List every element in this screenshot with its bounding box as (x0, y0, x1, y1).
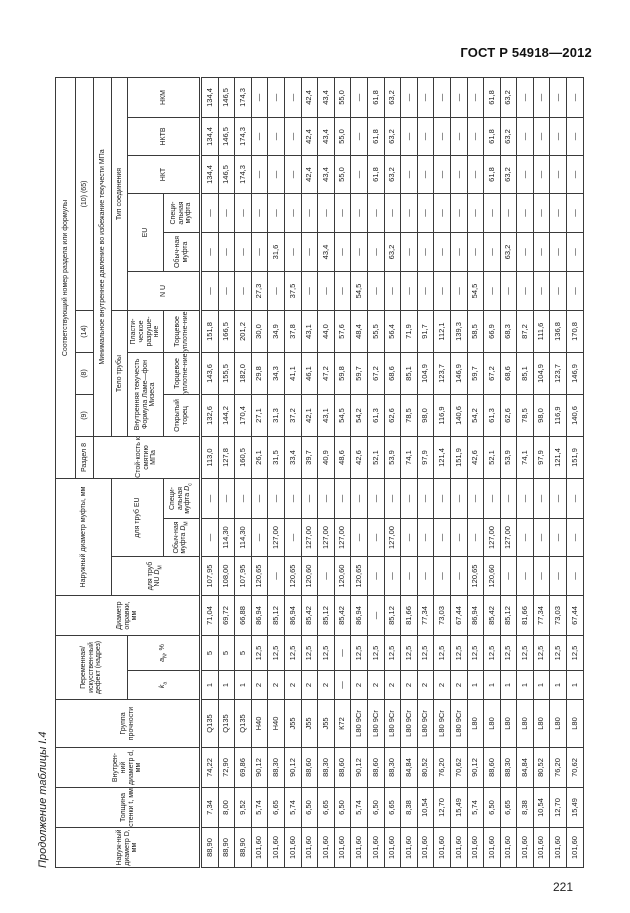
cell: 101,60 (284, 828, 301, 868)
cell: 170,4 (235, 395, 252, 437)
cell: 6,50 (367, 788, 384, 828)
table-row: 88,908,0072,90Q1351569,72108,00114,30—12… (218, 77, 235, 867)
cell: — (533, 272, 550, 311)
cell: 123,7 (434, 353, 451, 395)
cell: 67,44 (567, 596, 584, 636)
cell: 101,60 (301, 828, 318, 868)
cell: — (218, 272, 235, 311)
header-eu-special-coupling: Специ-альная муфта (164, 194, 201, 233)
cell: 2 (450, 671, 467, 700)
cell: — (550, 557, 567, 596)
table-row: 101,6015,4970,62L80112,567,44———151,9140… (567, 77, 584, 867)
cell: 120,60 (301, 557, 318, 596)
cell: L80 9Cr (434, 700, 451, 748)
page-number: 221 (553, 880, 573, 894)
cell: 101,60 (251, 828, 268, 868)
cell: L80 (484, 700, 501, 748)
cell: — (450, 156, 467, 194)
cell: 120,65 (284, 557, 301, 596)
cell: 43,4 (318, 77, 335, 117)
cell: — (251, 156, 268, 194)
cell: 114,30 (235, 519, 252, 557)
header-wall-thickness: Толщина стенки t, мм (56, 788, 201, 828)
header-variable-defect: Переменная/ искусствен-ный дефект (надре… (56, 636, 128, 700)
header-strength-grade: Группа прочности (56, 700, 201, 748)
cell: — (401, 118, 418, 156)
table-row: 101,605,7490,12L80112,586,94120,65——42,6… (467, 77, 484, 867)
cell: L80 9Cr (401, 700, 418, 748)
cell: — (301, 479, 318, 519)
header-connection-type: Тип соединения (112, 77, 128, 310)
cell: 42,4 (301, 77, 318, 117)
cell: 12,5 (251, 636, 268, 671)
cell: L80 (567, 700, 584, 748)
cell: 57,6 (334, 311, 351, 353)
cell: 81,66 (517, 596, 534, 636)
cell: 101,60 (484, 828, 501, 868)
header-min-internal-pressure: Минимальное внутреннее давление во избеж… (94, 77, 112, 436)
cell: 98,0 (533, 395, 550, 437)
cell: — (550, 77, 567, 117)
cell: 52,1 (484, 437, 501, 479)
cell: — (401, 519, 418, 557)
header-formula-9: (9) (76, 395, 94, 437)
cell: 39,7 (301, 437, 318, 479)
cell: — (251, 233, 268, 272)
cell: 127,00 (318, 519, 335, 557)
header-formula-8: (8) (76, 353, 94, 395)
cell: 88,60 (301, 748, 318, 788)
cell: 54,5 (351, 272, 368, 311)
cell: — (434, 118, 451, 156)
cell: 15,49 (450, 788, 467, 828)
cell: 127,00 (384, 519, 401, 557)
cell: 52,1 (367, 437, 384, 479)
cell: 26,1 (251, 437, 268, 479)
header-formula-14: (14) (76, 311, 94, 353)
cell: 88,30 (318, 748, 335, 788)
cell: — (401, 272, 418, 311)
cell: — (550, 479, 567, 519)
cell: — (401, 479, 418, 519)
cell: 12,70 (550, 788, 567, 828)
cell: — (550, 156, 567, 194)
cell: — (218, 194, 235, 233)
cell: 12,5 (301, 636, 318, 671)
cell: 67,44 (450, 596, 467, 636)
cell: 47,2 (318, 353, 335, 395)
cell: 120,65 (467, 557, 484, 596)
cell: 72,90 (218, 748, 235, 788)
cell: 2 (434, 671, 451, 700)
cell: 146,5 (218, 156, 235, 194)
cell: — (284, 479, 301, 519)
cell: 12,5 (417, 636, 434, 671)
cell: 88,60 (484, 748, 501, 788)
cell: — (318, 557, 335, 596)
cell: — (467, 479, 484, 519)
cell: 140,6 (450, 395, 467, 437)
cell: 101,60 (384, 828, 401, 868)
cell: 68,3 (500, 311, 517, 353)
cell: — (218, 479, 235, 519)
cell: 68,6 (384, 353, 401, 395)
cell: 6,50 (484, 788, 501, 828)
cell: — (500, 557, 517, 596)
cell: 5,74 (251, 788, 268, 828)
cell: 160,5 (235, 437, 252, 479)
cell: 151,9 (567, 437, 584, 479)
cell: 31,6 (268, 233, 285, 272)
cell: 43,4 (318, 156, 335, 194)
cell: 41,1 (284, 353, 301, 395)
cell: 61,8 (367, 118, 384, 156)
cell: 76,20 (434, 748, 451, 788)
cell: — (434, 557, 451, 596)
cell: — (367, 272, 384, 311)
cell: 88,30 (384, 748, 401, 788)
cell: — (401, 77, 418, 117)
cell: 1 (218, 671, 235, 700)
cell: 88,30 (268, 748, 285, 788)
cell: 5 (235, 636, 252, 671)
cell: 55,0 (334, 118, 351, 156)
cell: — (417, 156, 434, 194)
cell: 170,8 (567, 311, 584, 353)
cell: — (417, 233, 434, 272)
cell: J55 (301, 700, 318, 748)
cell: 12,5 (401, 636, 418, 671)
cell: Q135 (218, 700, 235, 748)
cell: 5 (218, 636, 235, 671)
cell: 107,95 (235, 557, 252, 596)
table-row: 101,605,7490,12L80 9Cr212,586,94120,65——… (351, 77, 368, 867)
cell: 69,72 (218, 596, 235, 636)
cell: — (434, 194, 451, 233)
cell: 63,2 (500, 77, 517, 117)
header-for-eu-pipes: для труб EU (112, 479, 164, 557)
cell: 84,84 (517, 748, 534, 788)
cell: — (251, 194, 268, 233)
cell: — (235, 194, 252, 233)
cell: 146,5 (218, 118, 235, 156)
cell: 2 (384, 671, 401, 700)
cell: 127,00 (268, 519, 285, 557)
cell: — (318, 272, 335, 311)
cell: 114,30 (218, 519, 235, 557)
cell: — (517, 233, 534, 272)
cell: 127,00 (301, 519, 318, 557)
cell: 86,94 (467, 596, 484, 636)
cell: 68,6 (500, 353, 517, 395)
cell: — (284, 156, 301, 194)
cell: 127,00 (500, 519, 517, 557)
cell: — (384, 272, 401, 311)
cell: — (367, 596, 384, 636)
cell: — (417, 194, 434, 233)
cell: 67,2 (484, 353, 501, 395)
cell: 85,1 (401, 353, 418, 395)
header-conn-nkt: НКТ (128, 156, 201, 194)
cell: 44,0 (318, 311, 335, 353)
header-corresponding-section: Соответствующий номер раздела или формул… (56, 77, 76, 478)
cell: — (467, 194, 484, 233)
cell: — (417, 519, 434, 557)
cell: 63,2 (500, 233, 517, 272)
cell: — (334, 233, 351, 272)
cell: 42,6 (467, 437, 484, 479)
cell: — (334, 636, 351, 671)
cell: — (334, 194, 351, 233)
cell: 42,4 (301, 156, 318, 194)
cell: — (268, 479, 285, 519)
cell: 1 (517, 671, 534, 700)
cell: 144,2 (218, 395, 235, 437)
cell: 1 (533, 671, 550, 700)
cell: — (450, 519, 467, 557)
cell: 63,2 (384, 233, 401, 272)
cell: — (268, 557, 285, 596)
cell: 70,62 (567, 748, 584, 788)
cell: 8,38 (517, 788, 534, 828)
cell: 10,54 (417, 788, 434, 828)
cell: L80 9Cr (450, 700, 467, 748)
cell: Q135 (235, 700, 252, 748)
cell: — (500, 194, 517, 233)
cell: L80 (500, 700, 517, 748)
cell: 37,5 (284, 272, 301, 311)
cell: — (201, 479, 219, 519)
cell: 88,60 (334, 748, 351, 788)
cell: — (351, 118, 368, 156)
cell: 6,65 (268, 788, 285, 828)
cell: 151,9 (450, 437, 467, 479)
cell: 6,65 (500, 788, 517, 828)
cell: 8,38 (401, 788, 418, 828)
cell: — (533, 233, 550, 272)
cell: — (550, 233, 567, 272)
cell: 43,4 (318, 118, 335, 156)
cell: 140,6 (567, 395, 584, 437)
cell: — (318, 194, 335, 233)
cell: 59,7 (351, 353, 368, 395)
cell: 12,5 (284, 636, 301, 671)
table-row: 101,606,5088,60J55212,585,42120,60127,00… (301, 77, 318, 867)
header-capped-end-plastic: Торцевое уплотне-ние (164, 311, 201, 353)
cell: 67,2 (367, 353, 384, 395)
cell: 121,4 (434, 437, 451, 479)
cell: — (517, 519, 534, 557)
cell: — (450, 77, 467, 117)
cell: — (533, 118, 550, 156)
header-eu-regular-coupling-dm: Обыч-ная муфта DМ (164, 519, 201, 557)
cell: — (567, 519, 584, 557)
cell: 59,8 (334, 353, 351, 395)
cell: 111,6 (533, 311, 550, 353)
cell: 70,62 (450, 748, 467, 788)
header-pipe-body: Тело трубы (112, 311, 128, 437)
cell: 101,60 (467, 828, 484, 868)
cell: 43,1 (301, 311, 318, 353)
cell: 55,0 (334, 156, 351, 194)
cell: 146,9 (567, 353, 584, 395)
cell: — (567, 156, 584, 194)
cell: 61,8 (367, 156, 384, 194)
cell: — (251, 519, 268, 557)
cell: — (550, 272, 567, 311)
cell: — (567, 479, 584, 519)
cell: 31,5 (268, 437, 285, 479)
cell: — (401, 557, 418, 596)
cell: 80,52 (533, 748, 550, 788)
cell: 2 (417, 671, 434, 700)
header-inner-diameter: Внутрен-ний диаметр d, мм (56, 748, 201, 788)
cell: 1 (550, 671, 567, 700)
cell: — (434, 233, 451, 272)
cell: — (450, 233, 467, 272)
header-open-end: Открытый торец (164, 395, 201, 437)
cell: — (384, 479, 401, 519)
cell: — (417, 479, 434, 519)
cell: L80 (517, 700, 534, 748)
cell: — (251, 479, 268, 519)
cell: 69,86 (235, 748, 252, 788)
header-conn-eu: EU (128, 194, 164, 272)
cell: 155,5 (218, 353, 235, 395)
cell: 174,3 (235, 156, 252, 194)
table-row: 101,606,6588,30L80112,585,12—127,00—53,9… (500, 77, 517, 867)
cell: — (318, 479, 335, 519)
cell: 101,60 (567, 828, 584, 868)
header-internal-yield-lame: Внутренняя текучестьФормула Ламе—фон Миз… (128, 353, 164, 437)
cell: 12,5 (367, 636, 384, 671)
cell: 9,52 (235, 788, 252, 828)
cell: 12,5 (567, 636, 584, 671)
table-row: 101,6012,7076,20L80 9Cr212,573,03———121,… (434, 77, 451, 867)
cell: — (235, 272, 252, 311)
cell: — (284, 519, 301, 557)
cell: 90,12 (284, 748, 301, 788)
table-row: 101,606,6588,30J55212,585,12—127,00—40,9… (318, 77, 335, 867)
cell: 146,9 (450, 353, 467, 395)
cell: — (384, 557, 401, 596)
cell: — (550, 118, 567, 156)
cell: 61,3 (484, 395, 501, 437)
cell: 54,2 (351, 395, 368, 437)
cell: 33,4 (284, 437, 301, 479)
cell: — (517, 479, 534, 519)
cell: 88,90 (218, 828, 235, 868)
cell: — (500, 272, 517, 311)
table-row: 88,909,5269,86Q1351566,88107,95114,30—16… (235, 77, 252, 867)
cell: 134,4 (201, 118, 219, 156)
header-plastic-collapse: Пласти-ческое разруше-ние (128, 311, 164, 353)
cell: 61,8 (484, 77, 501, 117)
cell: 5,74 (467, 788, 484, 828)
cell: — (401, 233, 418, 272)
cell: — (268, 272, 285, 311)
cell: 120,60 (334, 557, 351, 596)
cell: 12,5 (533, 636, 550, 671)
cell: 5,74 (351, 788, 368, 828)
cell: 54,2 (467, 395, 484, 437)
cell: — (533, 156, 550, 194)
cell: 62,6 (500, 395, 517, 437)
cell: 42,1 (301, 395, 318, 437)
cell: — (301, 272, 318, 311)
cell: 101,60 (351, 828, 368, 868)
cell: L80 9Cr (367, 700, 384, 748)
cell: — (417, 118, 434, 156)
cell: — (484, 479, 501, 519)
cell: 12,5 (434, 636, 451, 671)
table-row: 88,907,3474,22Q1351571,04107,95——113,013… (201, 77, 219, 867)
cell: 90,12 (467, 748, 484, 788)
cell: 127,8 (218, 437, 235, 479)
header-eu-regular-coupling: Обыч-ная муфта (164, 233, 201, 272)
cell: — (334, 272, 351, 311)
cell: 12,5 (484, 636, 501, 671)
cell: 62,6 (384, 395, 401, 437)
cell: 91,7 (417, 311, 434, 353)
cell: 87,2 (517, 311, 534, 353)
cell: 81,66 (401, 596, 418, 636)
header-conn-nu: N U (128, 272, 201, 311)
cell: 127,00 (484, 519, 501, 557)
cell: — (567, 272, 584, 311)
cell: 53,9 (500, 437, 517, 479)
cell: — (467, 519, 484, 557)
cell: — (567, 77, 584, 117)
table-row: 101,606,6588,30L80 9Cr212,585,12—127,00—… (384, 77, 401, 867)
cell: 166,5 (218, 311, 235, 353)
cell: 86,94 (351, 596, 368, 636)
header-for-nu-pipes: для труб NU DМ (112, 557, 201, 596)
cell: — (434, 519, 451, 557)
cell: 2 (367, 671, 384, 700)
cell: 146,5 (218, 77, 235, 117)
cell: 6,65 (318, 788, 335, 828)
cell: 132,6 (201, 395, 219, 437)
cell: 86,94 (251, 596, 268, 636)
cell: 15,49 (567, 788, 584, 828)
cell: 116,9 (434, 395, 451, 437)
header-conn-nkm: НКМ (128, 77, 201, 117)
table-row: 101,606,5088,60К72——85,42120,60127,00—48… (334, 77, 351, 867)
cell: — (235, 233, 252, 272)
document-number: ГОСТ Р 54918—2012 (460, 45, 592, 60)
cell: 7,34 (201, 788, 219, 828)
cell: 12,5 (550, 636, 567, 671)
cell: 112,1 (434, 311, 451, 353)
table-row: 101,605,7490,12J55212,586,94120,65——33,4… (284, 77, 301, 867)
cell: 78,5 (517, 395, 534, 437)
cell: 201,2 (235, 311, 252, 353)
cell: 101,60 (367, 828, 384, 868)
cell: 101,60 (500, 828, 517, 868)
cell: 88,30 (500, 748, 517, 788)
cell: 127,00 (334, 519, 351, 557)
cell: — (500, 479, 517, 519)
cell: — (284, 233, 301, 272)
cell: — (251, 77, 268, 117)
cell: — (268, 77, 285, 117)
cell: 101,60 (334, 828, 351, 868)
cell: — (434, 272, 451, 311)
cell: 76,20 (550, 748, 567, 788)
cell: — (334, 479, 351, 519)
cell: 43,1 (318, 395, 335, 437)
